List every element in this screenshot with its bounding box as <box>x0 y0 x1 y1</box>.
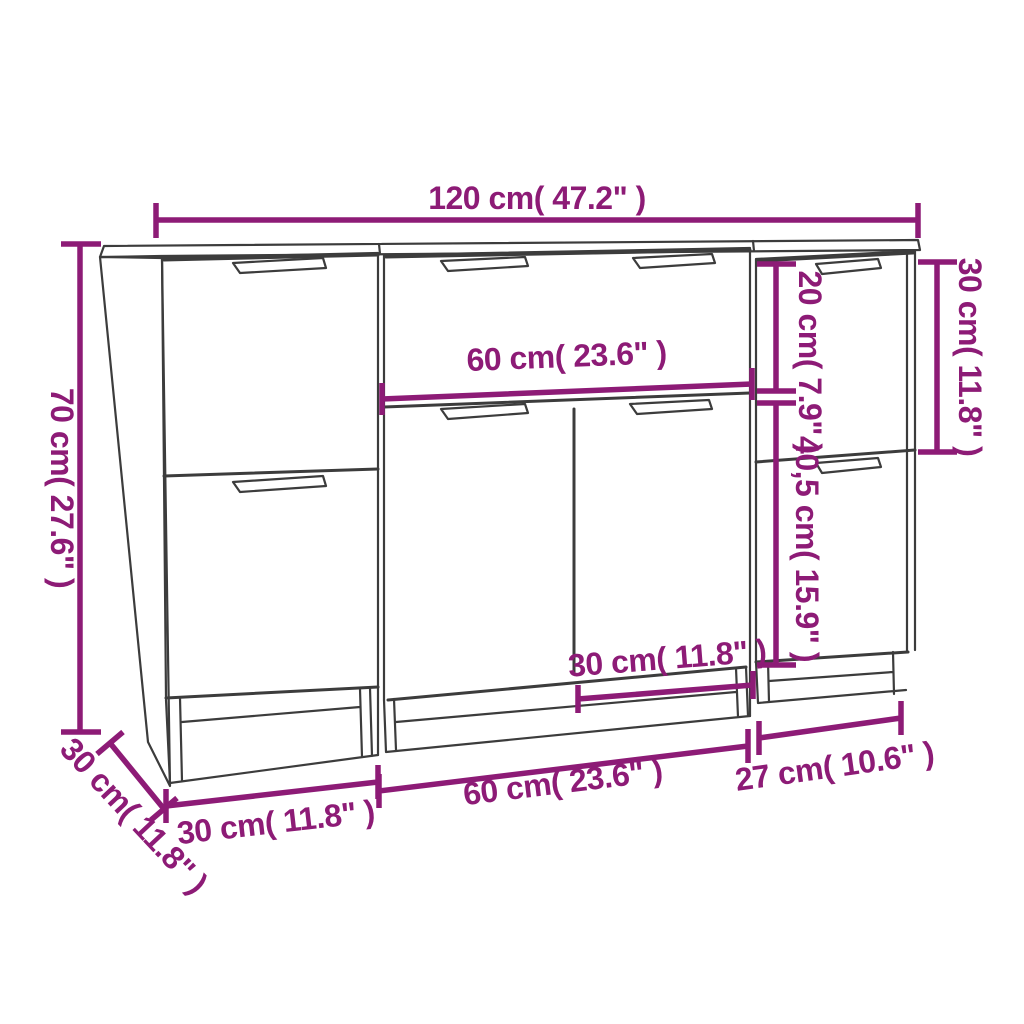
left-side-panel <box>100 257 170 786</box>
dim-middle-unit-width-label: 60 cm( 23.6" ) <box>461 752 664 812</box>
top-panel-division-right <box>753 241 754 251</box>
dim-overall-width-label: 120 cm( 47.2" ) <box>428 180 646 216</box>
dim-middle-unit-width: 60 cm( 23.6" ) <box>379 729 748 812</box>
dimension-annotations: 120 cm( 47.2" ) 70 cm( 27.6" ) 60 cm( 23… <box>44 180 988 900</box>
middle-unit <box>384 248 750 752</box>
dim-right-door-height-label: 40,5 cm( 15.9" ) <box>789 436 825 662</box>
dim-middle-drawer-width-label: 60 cm( 23.6" ) <box>466 334 668 378</box>
dim-left-unit-width: 30 cm( 11.8" ) <box>166 765 378 851</box>
dim-right-unit-width-label: 27 cm( 10.6" ) <box>733 734 936 798</box>
right-unit <box>756 251 915 703</box>
dim-right-unit-width: 27 cm( 10.6" ) <box>733 701 936 798</box>
handle-middle-door-right <box>630 400 712 414</box>
dim-right-drawer-height: 20 cm( 7.9" ) <box>757 264 828 453</box>
dim-right-door-height: 40,5 cm( 15.9" ) <box>757 403 825 665</box>
handle-middle-drawer-right <box>633 254 715 268</box>
dim-overall-height-label: 70 cm( 27.6" ) <box>44 388 80 588</box>
dim-overall-height: 70 cm( 27.6" ) <box>44 244 101 732</box>
top-panel-division-left <box>379 244 380 254</box>
dim-right-top-section-height-label: 30 cm( 11.8" ) <box>952 258 988 457</box>
left-unit-door-bottom <box>166 687 378 698</box>
dim-right-top-section-height-line <box>918 262 957 452</box>
dim-right-top-section-height: 30 cm( 11.8" ) <box>918 258 988 457</box>
handle-left-lower-door <box>233 476 326 492</box>
right-drawer-bottom <box>756 450 915 462</box>
handle-left-upper-door <box>233 258 326 273</box>
diagram-canvas: 120 cm( 47.2" ) 70 cm( 27.6" ) 60 cm( 23… <box>0 0 1024 1024</box>
dim-overall-width: 120 cm( 47.2" ) <box>156 180 918 238</box>
middle-unit-feet <box>384 667 750 752</box>
handle-middle-door-left <box>441 404 528 419</box>
left-unit-outline <box>162 253 378 755</box>
left-unit-door-split <box>164 469 378 476</box>
left-unit <box>162 253 378 783</box>
sideboard-dimension-diagram: 120 cm( 47.2" ) 70 cm( 27.6" ) 60 cm( 23… <box>0 0 1024 1024</box>
left-unit-feet <box>166 688 378 783</box>
right-door-bottom <box>756 652 908 662</box>
dim-right-drawer-height-label: 20 cm( 7.9" ) <box>792 271 828 454</box>
handle-middle-drawer-left <box>441 257 528 271</box>
dim-right-drawer-height-line <box>757 264 796 391</box>
